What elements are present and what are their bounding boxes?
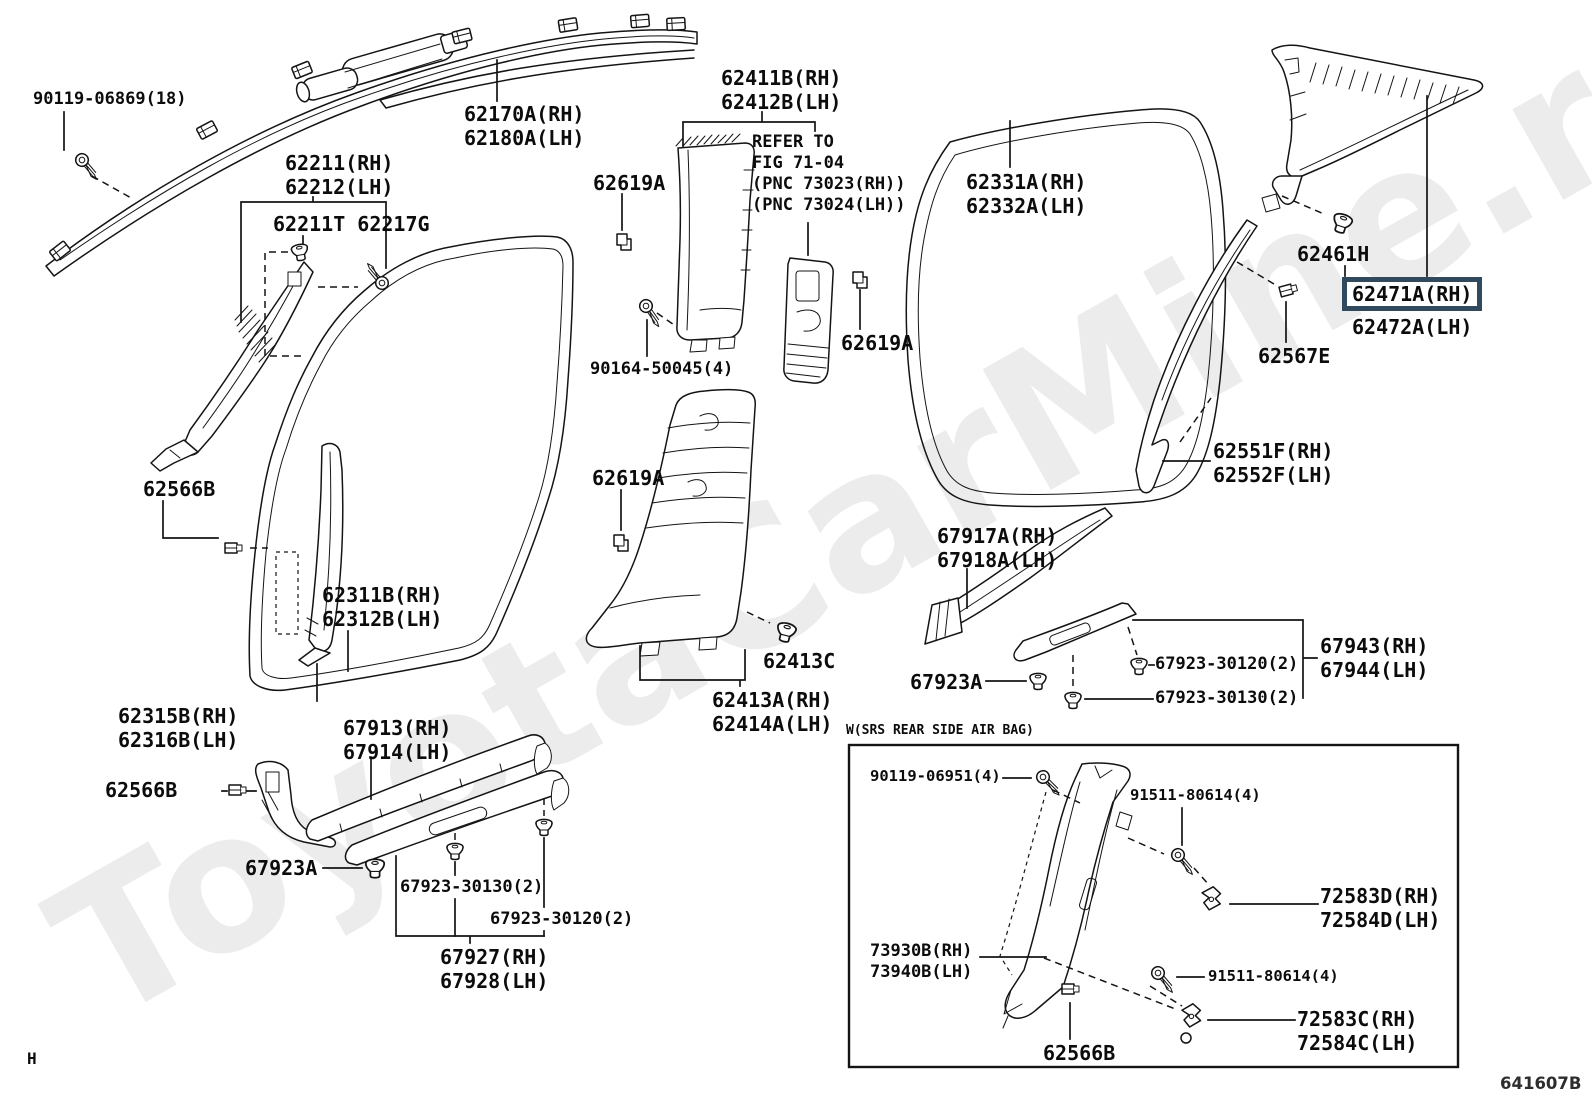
- label-62311B[interactable]: 62311B(RH)62312B(LH): [322, 583, 442, 631]
- label-72583D[interactable]: 72583D(RH)72584D(LH): [1320, 884, 1440, 932]
- label-90119-06951[interactable]: 90119-06951(4): [870, 767, 1001, 785]
- label-62331A[interactable]: 62331A(RH)62332A(LH): [966, 170, 1086, 218]
- label-62619A-top[interactable]: 62619A: [593, 171, 665, 195]
- parts-diagram-page: ToyotaCarMine.ru: [0, 0, 1592, 1099]
- label-67927[interactable]: 67927(RH)67928(LH): [440, 945, 548, 993]
- label-91511-80614-low[interactable]: 91511-80614(4): [1208, 967, 1339, 985]
- label-62472A[interactable]: 62472A(LH): [1352, 315, 1472, 339]
- label-62211[interactable]: 62211(RH)62212(LH): [285, 151, 393, 199]
- label-67923-30130-right[interactable]: 67923-30130(2): [1155, 688, 1298, 709]
- label-62211T-62217G[interactable]: 62211T 62217G: [273, 212, 430, 236]
- label-62567E[interactable]: 62567E: [1258, 344, 1330, 368]
- label-62566B-box[interactable]: 62566B: [1043, 1041, 1115, 1065]
- label-67923-30130-left[interactable]: 67923-30130(2): [400, 877, 543, 898]
- label-90119-06869[interactable]: 90119-06869(18): [33, 89, 187, 110]
- label-67923A-left[interactable]: 67923A: [245, 856, 317, 880]
- label-62566B-low[interactable]: 62566B: [105, 778, 177, 802]
- label-62619A-low[interactable]: 62619A: [592, 466, 664, 490]
- label-62619A-mid[interactable]: 62619A: [841, 331, 913, 355]
- label-doc-code: 641607B: [1500, 1073, 1581, 1094]
- label-62566B-up[interactable]: 62566B: [143, 477, 215, 501]
- label-corner-mark: H: [27, 1048, 37, 1069]
- label-62551F[interactable]: 62551F(RH)62552F(LH): [1213, 439, 1333, 487]
- label-91511-80614-up[interactable]: 91511-80614(4): [1130, 786, 1261, 804]
- label-62170A[interactable]: 62170A(RH)62180A(LH): [464, 102, 584, 150]
- label-62413C[interactable]: 62413C: [763, 649, 835, 673]
- label-62315B[interactable]: 62315B(RH)62316B(LH): [118, 704, 238, 752]
- label-73930B[interactable]: 73930B(RH)73940B(LH): [870, 941, 972, 983]
- label-refer-note: REFER TOFIG 71-04(PNC 73023(RH))(PNC 730…: [752, 132, 906, 216]
- label-67917A[interactable]: 67917A(RH)67918A(LH): [937, 524, 1057, 572]
- label-67923A-right[interactable]: 67923A: [910, 670, 982, 694]
- label-67923-30120-right[interactable]: 67923-30120(2): [1155, 654, 1298, 675]
- label-62413A[interactable]: 62413A(RH)62414A(LH): [712, 688, 832, 736]
- label-90164-50045[interactable]: 90164-50045(4): [590, 359, 733, 380]
- label-62411B[interactable]: 62411B(RH)62412B(LH): [721, 66, 841, 114]
- label-67923-30120-left[interactable]: 67923-30120(2): [490, 909, 633, 930]
- label-72583C[interactable]: 72583C(RH)72584C(LH): [1297, 1007, 1417, 1055]
- labels-layer: 90119-06869(18)62170A(RH)62180A(LH)62211…: [0, 0, 1592, 1099]
- label-67913[interactable]: 67913(RH)67914(LH): [343, 716, 451, 764]
- label-62461H[interactable]: 62461H: [1297, 242, 1369, 266]
- label-62471A[interactable]: 62471A(RH): [1342, 277, 1482, 311]
- label-67943[interactable]: 67943(RH)67944(LH): [1320, 634, 1428, 682]
- label-srs-title: W(SRS REAR SIDE AIR BAG): [846, 722, 1034, 740]
